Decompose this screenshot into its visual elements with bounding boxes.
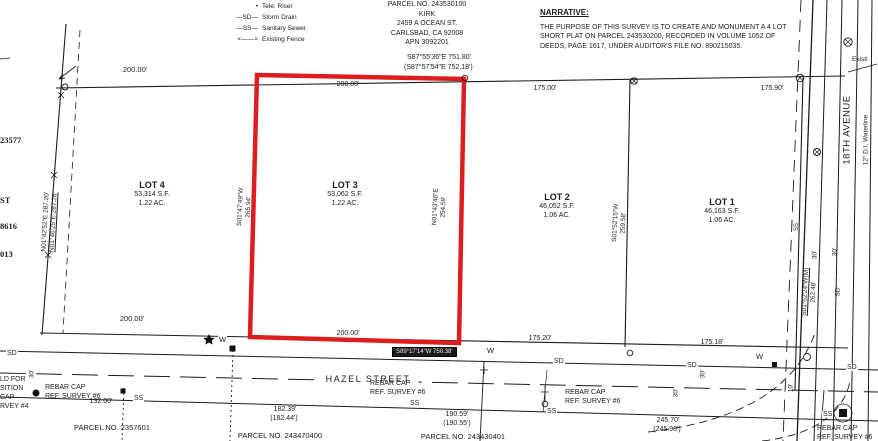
rebar-note-corner: REBAR CAP REF. SURVEY #6 <box>817 424 872 441</box>
held-fragment: CAP <box>0 393 29 402</box>
lot4-area-sf: 53,314 S.F. <box>134 190 169 199</box>
water-valve-marker: W <box>755 352 764 361</box>
owner-name: KIRK <box>343 10 511 20</box>
rebar-note-right: REBAR CAP REF. SURVEY #6 <box>565 388 620 406</box>
narrative-body: THE PURPOSE OF THIS SURVEY IS TO CREATE … <box>540 23 796 51</box>
held-fragment: RVEY #4 <box>0 402 29 411</box>
lot2-label: LOT 2 46,052 S.F. 1.06 AC. <box>539 192 574 220</box>
dim-low-190-record: (190.55') <box>443 420 470 428</box>
dim-low-182: 182.39' <box>274 406 297 414</box>
lot1-area-ac: 1.06 AC. <box>704 216 739 225</box>
legend-label: Storm Drain <box>262 12 297 23</box>
dim-top-200-lot3: 200.00' <box>337 81 360 89</box>
bearing-lot4-lot3: S01°47'49"W 265.94' <box>236 187 254 226</box>
water-valve-marker: W <box>486 346 495 355</box>
sd-marker: SD <box>553 358 565 365</box>
rebar-cap-text: REBAR CAP <box>45 383 100 392</box>
lot3-area-sf: 53,062 S.F. <box>327 190 362 199</box>
offset-30-bottom-b: 30' <box>673 389 680 397</box>
survey-plat-map: • Tele. Riser —SD— Storm Drain —SS— Sani… <box>0 0 878 441</box>
legend-label: Tele. Riser <box>262 1 293 12</box>
offset-30-bottom-a: 30' <box>700 370 707 378</box>
tele-riser-icon: • <box>230 1 258 12</box>
monument-symbols <box>33 38 853 422</box>
water-valve-marker: W <box>218 335 227 344</box>
lot2-area-ac: 1.06 AC. <box>539 211 574 220</box>
lot2-area-sf: 46,052 S.F. <box>539 202 574 211</box>
dim-low-182-record: (182.44') <box>270 415 297 423</box>
avenue-name-label: 18TH AVENUE <box>842 95 853 164</box>
rebar-cap-text: REBAR CAP <box>817 424 872 433</box>
ss-marker: SS <box>409 400 420 407</box>
bearing-west-fence: N01°42'52"E 287.20' N01°46'25"E 287.26' <box>40 192 59 253</box>
rebar-note-mid: REBAR CAP REF. SURVEY #6 <box>370 379 425 397</box>
dim-bot-200-lot3: 200.00' <box>337 330 360 338</box>
legend-item-sanitary-sewer: —SS— Sanitary Sewer <box>230 23 306 34</box>
rebar-ref-text: REF. SURVEY #6 <box>817 433 872 441</box>
parcel-bottom-1: PARCEL NO. 2357601 <box>74 424 150 433</box>
edge-fragment: ST <box>0 196 10 206</box>
legend-item-existing-fence: ×——× Existing Fence <box>230 34 306 45</box>
lot2-name: LOT 2 <box>539 192 574 202</box>
dim-top-175-lot2: 175.00' <box>534 85 557 93</box>
parcel-bottom-2: PARCEL NO. 243470400 <box>238 432 322 441</box>
held-fragment: LD FOR <box>0 375 29 384</box>
dim-bot-200-west: 200.00' <box>120 315 144 324</box>
existing-fence-icon: ×——× <box>230 34 258 45</box>
offset-30-right-b: 30' <box>832 248 839 256</box>
lot1-area-sf: 46,163 S.F. <box>704 207 739 216</box>
lot4-name: LOT 4 <box>134 180 169 190</box>
bearing-lot3-lot2: N01°43'46"E 254.59' <box>431 188 449 226</box>
owner-block: PARCEL NO. 243530100 KIRK 2459 A OCEAN S… <box>343 0 511 48</box>
sd-marker-vertical: SD <box>835 287 842 296</box>
rebar-ref-text: REF. SURVEY #6 <box>565 397 620 406</box>
dim-bot-bearing-boxed: S89°17'14"W 750.38' <box>392 347 457 357</box>
street-lines <box>0 351 878 421</box>
dim-bot-175-lot2: 175.20' <box>529 335 552 343</box>
rebar-cap-text: REBAR CAP <box>565 388 620 397</box>
sd-marker: SD <box>6 350 18 357</box>
dim-top-175-lot1: 175.90' <box>761 85 784 93</box>
storm-drain-icon: —SD— <box>230 12 258 23</box>
narrative-block: NARRATIVE: THE PURPOSE OF THIS SURVEY IS… <box>540 8 796 51</box>
sanitary-sewer-icon: —SS— <box>230 23 258 34</box>
legend-item-storm-drain: —SD— Storm Drain <box>230 12 306 23</box>
dim-top-bearing-record: (S87°57'54"E 752.18') <box>404 64 473 72</box>
dim-low-132: 132.00' <box>90 398 113 406</box>
lot3-area-ac: 1.22 AC. <box>327 199 362 208</box>
owner-address: 2459 A OCEAN ST. <box>343 19 511 29</box>
lot1-name: LOT 1 <box>704 197 739 207</box>
ss-marker: SS <box>133 395 144 402</box>
lot4-label: LOT 4 53,314 S.F. 1.22 AC. <box>134 180 169 208</box>
dim-low-245: 245.70' <box>657 417 680 425</box>
rebar-ref-text: REF. SURVEY #6 <box>370 388 425 397</box>
edge-fragment: 013 <box>0 250 13 260</box>
waterline-label: 12" D.I. Waterline <box>863 115 870 165</box>
rebar-cap-text: REBAR CAP <box>370 379 425 388</box>
ss-marker-vertical: SS <box>794 223 800 231</box>
offset-30-right-a: 30' <box>812 251 819 259</box>
tie-lines <box>122 350 824 441</box>
dim-low-245-record: (245.90') <box>653 426 680 434</box>
lot1-label: LOT 1 46,163 S.F. 1.06 AC. <box>704 197 739 225</box>
existing-cut-label: Existi <box>852 56 868 63</box>
sd-marker: SD <box>846 364 858 371</box>
lot3-name: LOT 3 <box>327 180 362 190</box>
legend-label: Existing Fence <box>262 34 305 45</box>
lot4-area-ac: 1.22 AC. <box>134 199 169 208</box>
edge-fragment: 8616 <box>0 222 17 232</box>
dim-top-bearing: S87°55'36"E 751.80' <box>407 54 471 62</box>
held-fragment: SITION <box>0 384 29 393</box>
edge-fragment: 23577 <box>0 136 21 146</box>
owner-parcel-no: PARCEL NO. 243530100 <box>343 0 511 10</box>
dim-low-190: 190.59' <box>446 411 469 419</box>
ss-marker: SS <box>822 411 833 418</box>
offset-30-left: 30' <box>29 370 36 378</box>
narrative-title: NARRATIVE: <box>540 8 796 17</box>
sd-marker: SD <box>686 362 698 369</box>
lot3-label: LOT 3 53,062 S.F. 1.22 AC. <box>327 180 362 208</box>
ss-marker: SS <box>546 408 557 415</box>
bearing-east-boundary: S01°52'24"W(M) 262.48' <box>801 268 819 317</box>
held-note-cut: LD FOR SITION CAP RVEY #4 <box>0 375 29 411</box>
dim-top-200-west: 200.00' <box>123 66 147 75</box>
legend-label: Sanitary Sewer <box>262 23 306 34</box>
owner-city: CARLSBAD, CA 92008 <box>343 29 511 39</box>
parcel-bottom-3: PARCEL NO. 243430401 <box>421 433 505 441</box>
offset-10-label: 10' <box>788 384 795 392</box>
bearing-lot2-lot1: S01°52'15"W 259.58' <box>611 203 629 242</box>
map-legend: • Tele. Riser —SD— Storm Drain —SS— Sani… <box>230 1 306 45</box>
legend-item-tele-riser: • Tele. Riser <box>230 1 306 12</box>
owner-apn: APN 3092201 <box>343 38 511 48</box>
avenue-lines <box>783 0 877 441</box>
dim-bot-175-lot1: 175.18' <box>701 339 724 347</box>
